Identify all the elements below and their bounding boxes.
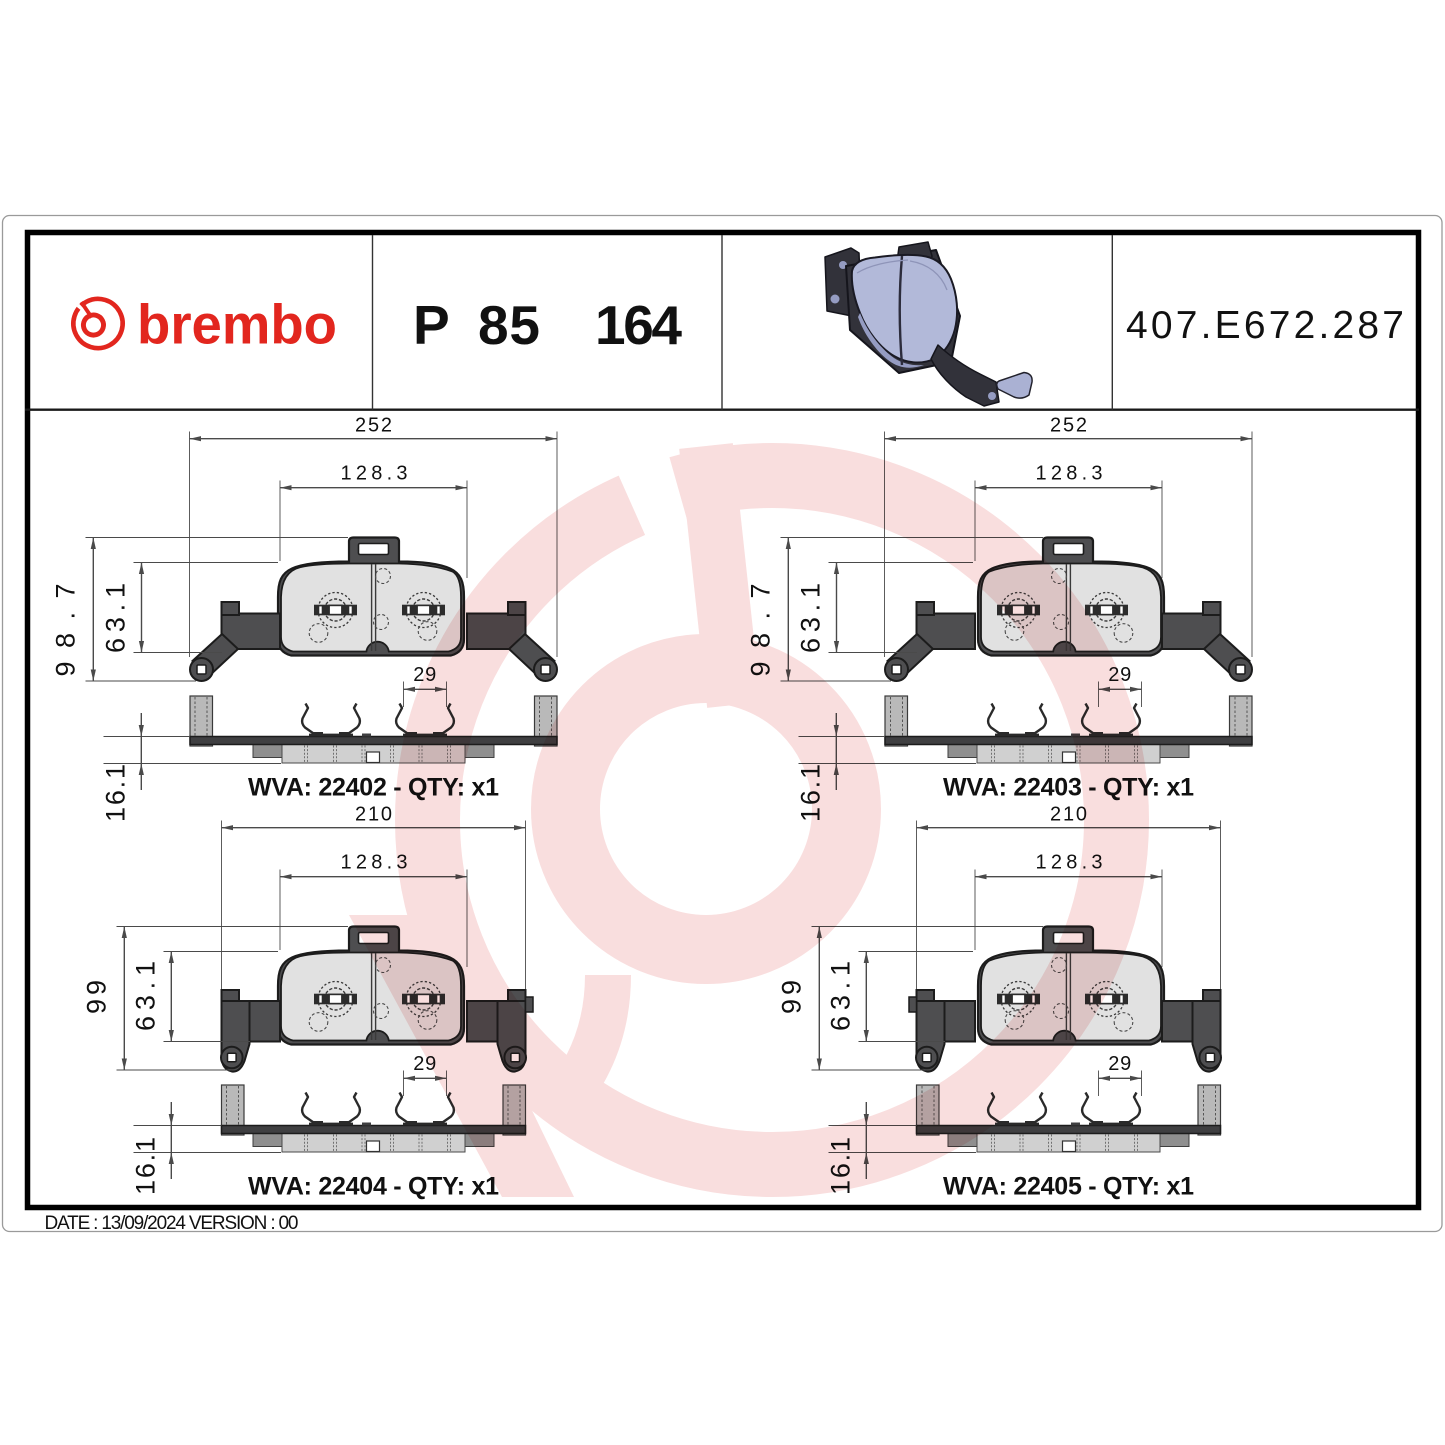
svg-text:407.E672.287: 407.E672.287 (1126, 304, 1404, 347)
svg-text:128.3: 128.3 (341, 463, 408, 485)
svg-text:WVA: 22403 - QTY: x1: WVA: 22403 - QTY: x1 (943, 774, 1194, 802)
svg-text:brembo: brembo (137, 293, 337, 356)
svg-text:63.1: 63.1 (796, 583, 826, 653)
svg-text:63.1: 63.1 (131, 961, 161, 1031)
svg-text:WVA: 22404 - QTY: x1: WVA: 22404 - QTY: x1 (248, 1173, 499, 1201)
svg-text:16.1: 16.1 (131, 1137, 161, 1195)
svg-text:WVA: 22405 - QTY: x1: WVA: 22405 - QTY: x1 (943, 1173, 1194, 1201)
svg-text:DATE : 13/09/2024 VERSION : 00: DATE : 13/09/2024 VERSION : 00 (45, 1213, 299, 1234)
svg-text:252: 252 (1050, 415, 1087, 437)
svg-text:252: 252 (355, 415, 392, 437)
svg-text:164: 164 (595, 294, 682, 356)
svg-text:210: 210 (355, 804, 392, 826)
svg-text:63.1: 63.1 (826, 961, 856, 1031)
svg-text:210: 210 (1050, 804, 1087, 826)
svg-text:16.1: 16.1 (101, 764, 131, 822)
svg-text:128.3: 128.3 (1036, 463, 1103, 485)
svg-text:P: P (413, 294, 450, 356)
svg-text:29: 29 (1108, 1053, 1131, 1075)
svg-text:63.1: 63.1 (101, 583, 131, 653)
svg-text:85: 85 (478, 294, 540, 356)
